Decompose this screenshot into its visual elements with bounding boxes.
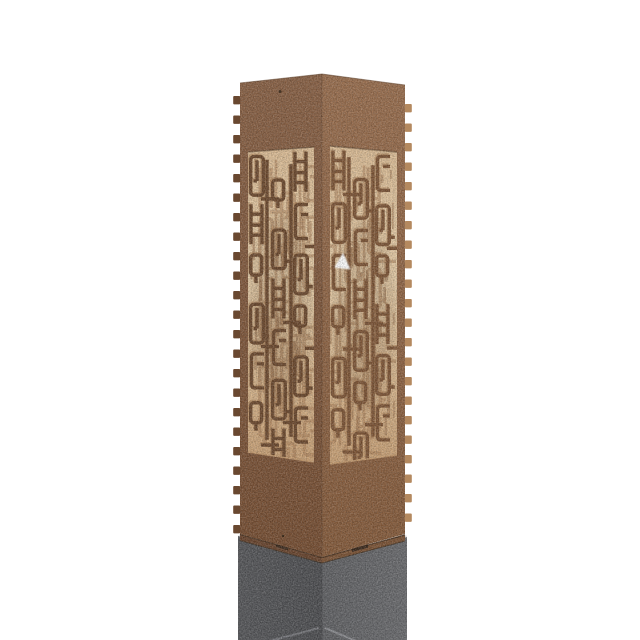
- edge-tab: [405, 514, 412, 522]
- edge-tab: [233, 389, 240, 397]
- edge-tabs-left: [233, 96, 240, 533]
- edge-tab: [233, 116, 240, 124]
- grain-light: [232, 70, 412, 640]
- bollard-render: [0, 0, 640, 640]
- edge-tab: [405, 319, 412, 327]
- edge-tab: [405, 494, 412, 502]
- edge-tab: [405, 475, 412, 483]
- edge-tab: [233, 233, 240, 241]
- edge-tab: [233, 135, 240, 143]
- edge-tab: [233, 408, 240, 416]
- edge-tab: [405, 299, 412, 307]
- edge-tabs-right: [405, 104, 412, 522]
- edge-tab: [233, 467, 240, 475]
- edge-tab: [405, 397, 412, 405]
- edge-tab: [405, 436, 412, 444]
- edge-tab: [233, 486, 240, 494]
- edge-tab: [233, 174, 240, 182]
- edge-tab: [233, 447, 240, 455]
- edge-tab: [405, 280, 412, 288]
- edge-tab: [405, 358, 412, 366]
- edge-tab: [405, 221, 412, 229]
- edge-tab: [405, 338, 412, 346]
- edge-tab: [405, 241, 412, 249]
- edge-tab: [405, 104, 412, 112]
- edge-tab: [233, 506, 240, 514]
- edge-tab: [405, 260, 412, 268]
- edge-tab: [233, 291, 240, 299]
- edge-tab: [405, 377, 412, 385]
- edge-tab: [233, 369, 240, 377]
- edge-tab: [233, 213, 240, 221]
- edge-tab: [233, 525, 240, 533]
- edge-tab: [405, 202, 412, 210]
- edge-tab: [233, 194, 240, 202]
- edge-tab: [233, 155, 240, 163]
- edge-tab: [405, 416, 412, 424]
- edge-tab: [405, 182, 412, 190]
- edge-tab: [233, 428, 240, 436]
- edge-tab: [233, 330, 240, 338]
- product-photo: [0, 0, 640, 640]
- edge-tab: [233, 311, 240, 319]
- edge-tab: [233, 272, 240, 280]
- edge-tab: [405, 163, 412, 171]
- surface-grain: [232, 70, 412, 640]
- edge-tab: [233, 252, 240, 260]
- edge-tab: [233, 96, 240, 104]
- edge-tab: [233, 350, 240, 358]
- edge-tab: [405, 143, 412, 151]
- edge-tab: [405, 455, 412, 463]
- edge-tab: [405, 124, 412, 132]
